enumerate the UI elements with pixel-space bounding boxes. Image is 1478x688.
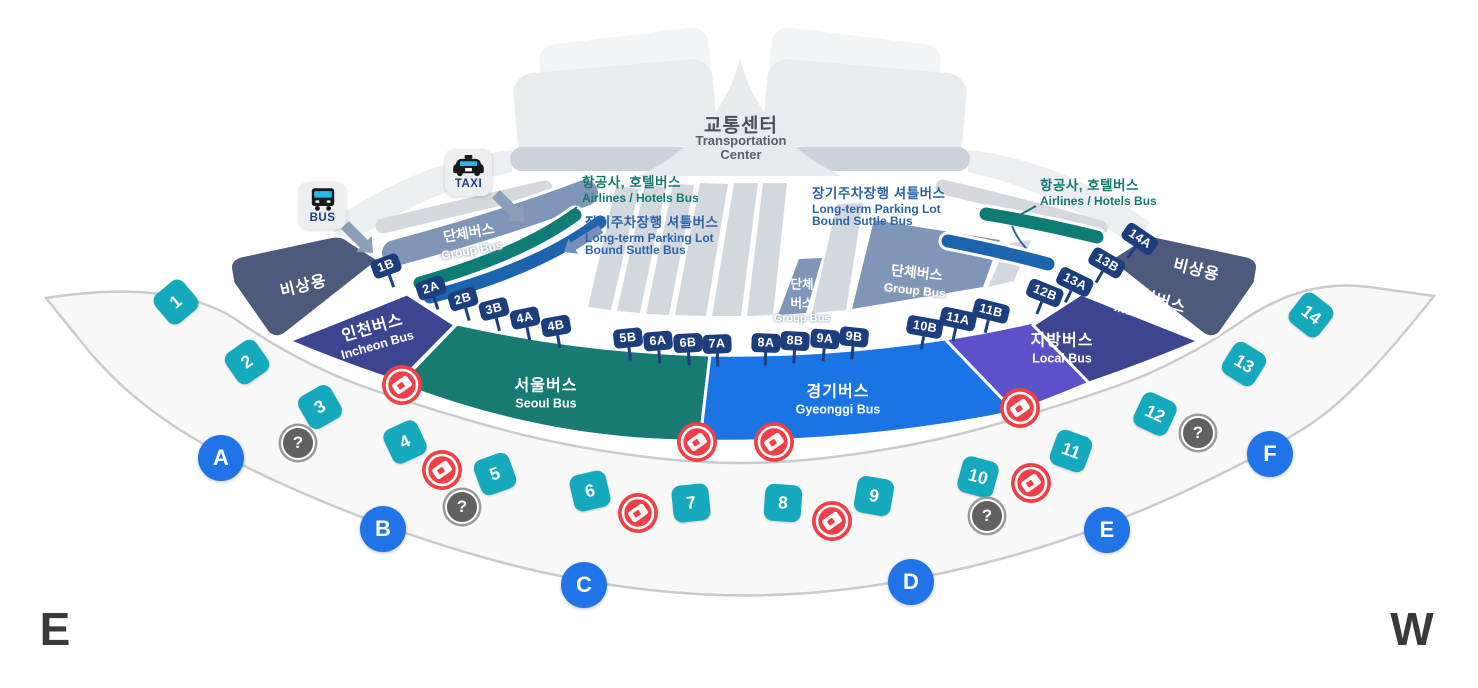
gate-tag-5B[interactable]: 5B [613, 327, 644, 349]
gate-tag-9B[interactable]: 9B [839, 326, 870, 348]
callout-airlines-left-en: Airlines / Hotels Bus [582, 192, 699, 205]
callout-longterm-left: 장기주차장행 셔틀버스 Long-term Parking Lot Bound … [585, 217, 718, 257]
title-english-line1: Transportation [695, 134, 786, 148]
door-marker-F[interactable]: F [1247, 431, 1293, 477]
ticket-booth-icon[interactable] [381, 364, 423, 406]
callout-airlines-right-en: Airlines / Hotels Bus [1040, 195, 1157, 208]
door-marker-D[interactable]: D [888, 559, 934, 605]
title-english-line2: Center [695, 148, 786, 162]
callout-longterm-left-en2: Bound Suttle Bus [585, 244, 718, 257]
bus-glyph-icon [309, 187, 337, 212]
compass-east: E [40, 602, 71, 656]
gate-tag-6B[interactable]: 6B [673, 333, 703, 353]
airport-bus-stop-map: 교통센터 Transportation Center BUS TAXI 항공사,… [0, 0, 1478, 688]
gate-tag-8B[interactable]: 8B [780, 331, 810, 351]
gate-stem [716, 353, 719, 366]
gate-stem [764, 352, 767, 365]
door-marker-E[interactable]: E [1084, 507, 1130, 553]
stop-marker-7[interactable]: 7 [671, 483, 712, 524]
compass-west: W [1390, 602, 1433, 656]
ticket-booth-icon[interactable] [753, 421, 795, 463]
ticket-booth-icon[interactable] [421, 449, 463, 491]
information-icon[interactable]: ? [1181, 416, 1215, 450]
callout-longterm-right-ko: 장기주차장행 셔틀버스 [812, 188, 945, 201]
gate-stem [687, 352, 691, 365]
gate-tag-8A[interactable]: 8A [751, 333, 781, 353]
callout-airlines-right-ko: 항공사, 호텔버스 [1040, 180, 1157, 193]
ticket-booth-icon[interactable] [676, 421, 718, 463]
information-icon[interactable]: ? [970, 499, 1004, 533]
ticket-booth-icon[interactable] [1010, 462, 1052, 504]
callout-longterm-right: 장기주차장행 셔틀버스 Long-term Parking Lot Bound … [812, 188, 945, 228]
callout-longterm-left-ko: 장기주차장행 셔틀버스 [585, 217, 718, 230]
information-icon[interactable]: ? [281, 426, 315, 460]
ticket-booth-icon[interactable] [617, 492, 659, 534]
callout-airlines-left-ko: 항공사, 호텔버스 [582, 177, 699, 190]
callout-airlines-left: 항공사, 호텔버스 Airlines / Hotels Bus [582, 177, 699, 204]
gate-tag-7A[interactable]: 7A [702, 334, 732, 354]
taxi-icon-label: TAXI [455, 178, 482, 190]
gate-tag-6A[interactable]: 6A [643, 330, 674, 351]
bus-icon[interactable]: BUS [299, 182, 346, 229]
group-bus-right-wedge [852, 220, 1000, 309]
callout-airlines-right: 항공사, 호텔버스 Airlines / Hotels Bus [1040, 180, 1157, 207]
door-marker-A[interactable]: A [198, 435, 244, 481]
stop-marker-9[interactable]: 9 [853, 475, 896, 518]
map-shapes [0, 0, 1478, 688]
gate-tag-9A[interactable]: 9A [810, 328, 841, 349]
ticket-booth-icon[interactable] [811, 500, 853, 542]
stop-marker-8[interactable]: 8 [763, 483, 802, 522]
taxi-glyph-icon [452, 155, 485, 178]
information-icon[interactable]: ? [445, 490, 479, 524]
ticket-booth-icon[interactable] [999, 387, 1041, 429]
door-marker-C[interactable]: C [561, 562, 607, 608]
taxi-icon[interactable]: TAXI [445, 149, 492, 196]
door-marker-B[interactable]: B [360, 506, 406, 552]
callout-longterm-right-en2: Bound Suttle Bus [812, 215, 945, 228]
transportation-center-subtitle: Transportation Center [695, 134, 786, 162]
bus-icon-label: BUS [310, 212, 336, 224]
